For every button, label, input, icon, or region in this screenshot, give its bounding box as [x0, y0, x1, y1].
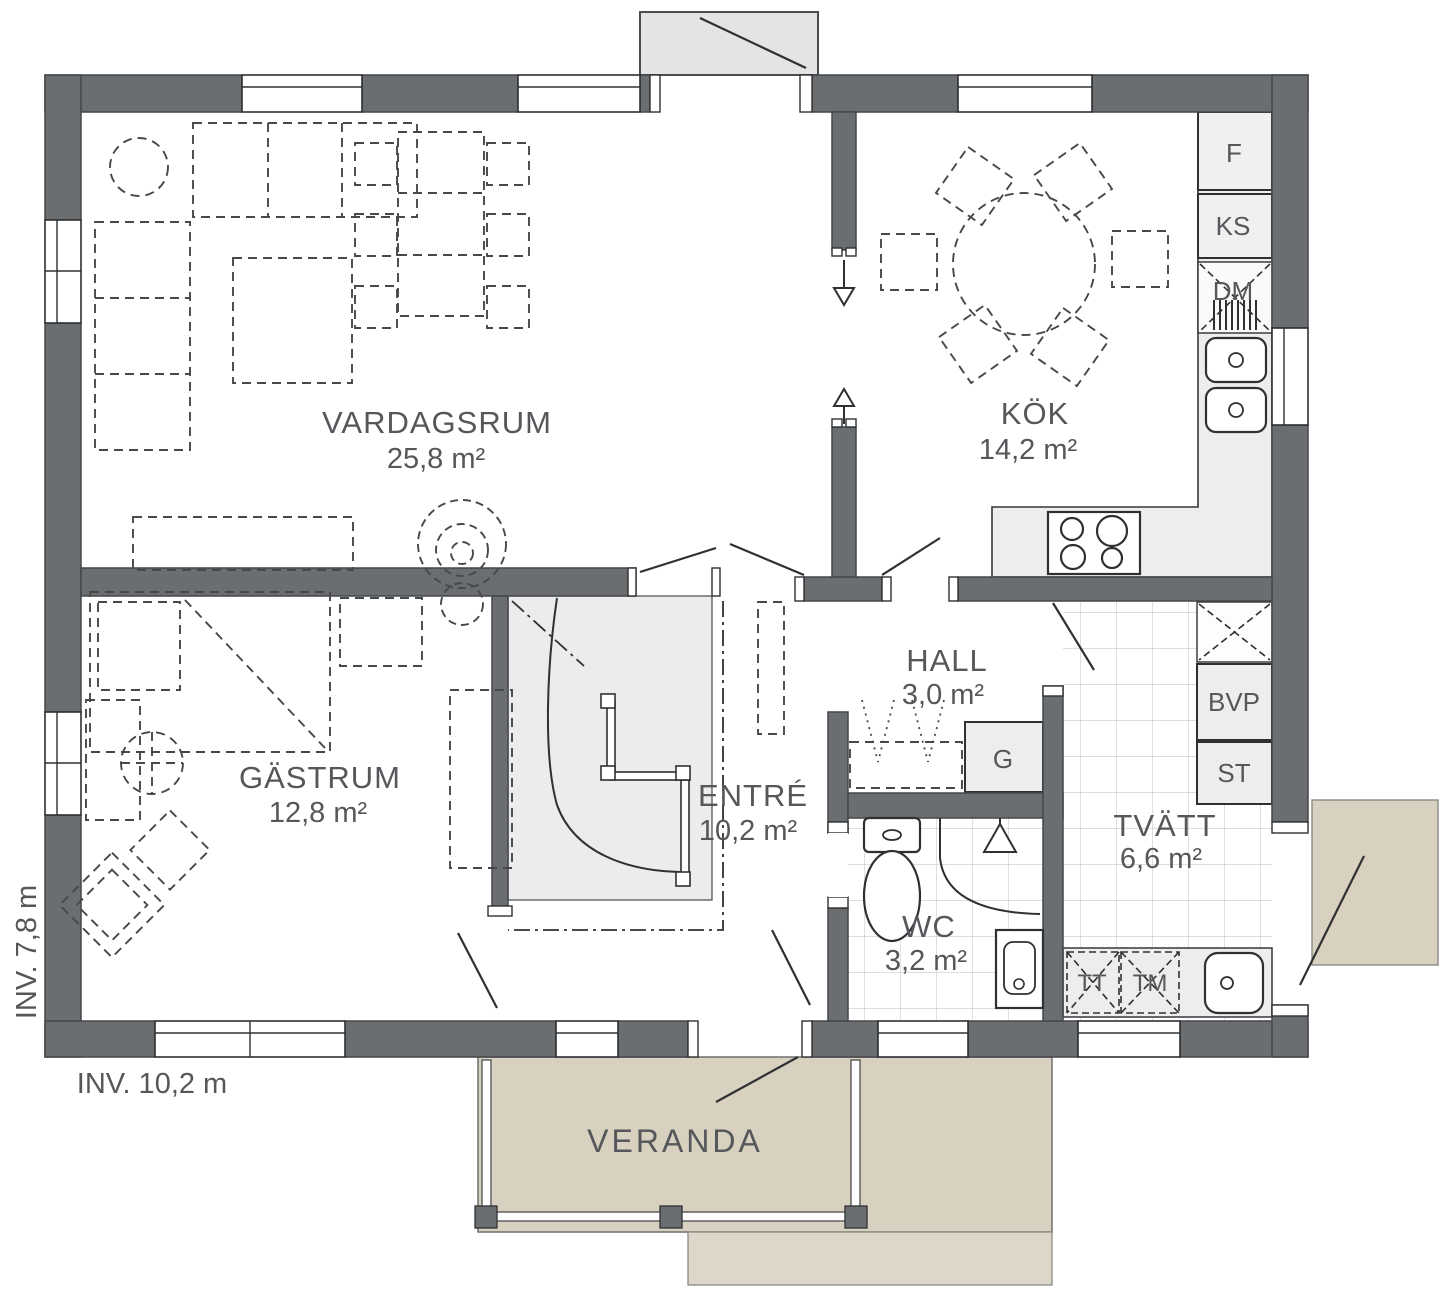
room-area-kok: 14,2 m²	[979, 434, 1078, 466]
wall-hall-wc	[848, 793, 1063, 818]
wall-vardagsrum-gastrum	[81, 568, 636, 596]
room-area-vardagsrum: 25,8 m²	[387, 443, 486, 475]
veranda-rail-right	[851, 1060, 860, 1218]
room-area-hall: 3,0 m²	[902, 679, 985, 711]
veranda-step	[688, 1232, 1052, 1285]
appliance-label-ks: KS	[1216, 211, 1251, 241]
appliance-label-tt: TT	[1077, 970, 1107, 997]
side-step	[1312, 800, 1438, 965]
room-label-gastrum: GÄSTRUM	[239, 760, 401, 795]
room-label-tvatt: TVÄTT	[1113, 808, 1216, 843]
veranda-post	[660, 1206, 682, 1228]
wall-stub-upper	[832, 112, 856, 250]
room-area-tvatt: 6,6 m²	[1120, 843, 1203, 875]
wall-entre-hall	[804, 577, 882, 601]
stove	[1048, 512, 1140, 574]
floor-plan-svg: VARDAGSRUM 25,8 m² KÖK 14,2 m² GÄSTRUM 1…	[0, 0, 1440, 1311]
wall-kitchen-south	[958, 577, 1272, 601]
entrance-canopy	[640, 12, 818, 75]
room-label-wc: WC	[902, 909, 956, 944]
window	[242, 75, 362, 112]
appliance-label-f: F	[1226, 138, 1242, 168]
dimension-depth: INV. 7,8 m	[11, 885, 43, 1019]
room-label-veranda: VERANDA	[587, 1123, 763, 1159]
laundry-sink	[1205, 953, 1263, 1013]
window	[1272, 328, 1308, 425]
veranda-post	[845, 1206, 867, 1228]
appliance-label-st: ST	[1217, 758, 1250, 788]
appliance-label-dm: DM	[1213, 276, 1253, 306]
wall-entre-wc	[828, 908, 848, 1021]
wc-door-opening	[828, 833, 848, 897]
window	[878, 1021, 968, 1057]
room-label-entre: ENTRÉ	[698, 778, 808, 813]
window	[556, 1021, 618, 1057]
dimension-width: INV. 10,2 m	[77, 1068, 227, 1100]
floor-plan-page: VARDAGSRUM 25,8 m² KÖK 14,2 m² GÄSTRUM 1…	[0, 0, 1440, 1311]
wall-wc-tvatt	[1043, 686, 1063, 1021]
wall-entre-wc	[828, 712, 848, 833]
room-label-kok: KÖK	[1001, 396, 1069, 431]
appliance-label-tm: TM	[1133, 970, 1168, 997]
window	[518, 75, 640, 112]
veranda-post	[475, 1206, 497, 1228]
wall-stair-left	[492, 596, 508, 908]
room-area-gastrum: 12,8 m²	[269, 797, 368, 829]
window	[958, 75, 1092, 112]
room-area-entre: 10,2 m²	[699, 815, 798, 847]
wall-stub-lower	[832, 427, 856, 577]
room-label-hall: HALL	[906, 643, 988, 678]
veranda-deck	[475, 1057, 1052, 1285]
appliance-label-g: G	[993, 744, 1013, 774]
window	[1078, 1021, 1180, 1057]
veranda-rail-left	[482, 1060, 491, 1212]
room-label-vardagsrum: VARDAGSRUM	[322, 405, 552, 440]
appliance-label-bvp: BVP	[1208, 687, 1260, 717]
room-area-wc: 3,2 m²	[885, 945, 968, 977]
wc-sink-icon	[996, 930, 1043, 1008]
